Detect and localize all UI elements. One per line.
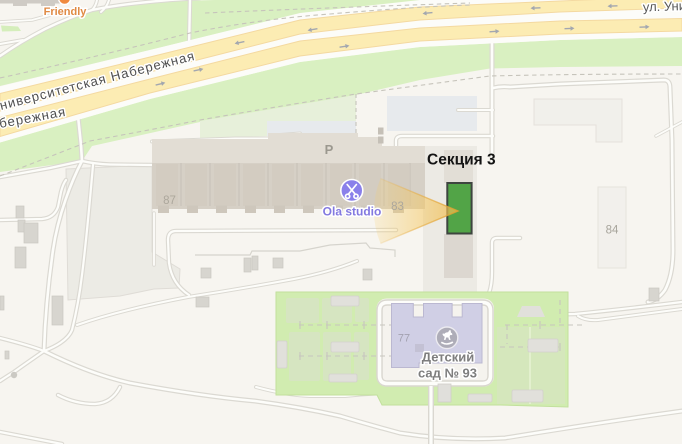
svg-text:Friendly: Friendly <box>44 6 88 18</box>
svg-text:сад № 93: сад № 93 <box>418 366 477 381</box>
svg-text:87: 87 <box>163 195 176 207</box>
svg-text:P: P <box>325 142 334 157</box>
svg-text:77: 77 <box>398 333 410 345</box>
svg-text:84: 84 <box>606 225 619 237</box>
svg-text:Ola studio: Ola studio <box>323 205 382 219</box>
svg-text:Детский: Детский <box>422 350 474 365</box>
svg-text:83: 83 <box>391 201 404 213</box>
svg-text:ул. Уни: ул. Уни <box>643 0 682 14</box>
svg-text:Секция 3: Секция 3 <box>427 152 496 169</box>
